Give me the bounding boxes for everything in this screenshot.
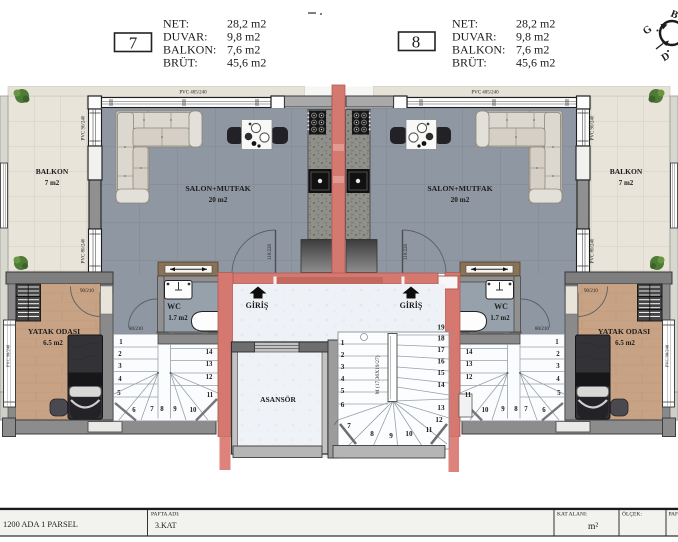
svg-text:1: 1 [341,339,345,347]
svg-text:BALKON:: BALKON: [163,43,216,57]
svg-text:ASANSÖR: ASANSÖR [260,395,296,404]
svg-text:BALKON:: BALKON: [452,43,505,57]
svg-text:19: 19 [437,324,445,332]
svg-text:8: 8 [370,430,374,438]
svg-text:9,8 m2: 9,8 m2 [516,30,549,44]
svg-text:6.5 m2: 6.5 m2 [615,339,635,347]
svg-text:2: 2 [556,351,560,358]
svg-text:12: 12 [435,416,443,424]
svg-text:7: 7 [524,406,528,413]
svg-text:5: 5 [117,390,121,397]
svg-text:PVC 80/240: PVC 80/240 [591,238,596,263]
svg-text:80/210: 80/210 [129,327,143,332]
svg-text:PVC 405/240: PVC 405/240 [471,91,499,96]
svg-text:110/220: 110/220 [268,243,273,260]
svg-text:PVC 80/240: PVC 80/240 [82,238,87,263]
svg-text:6: 6 [542,407,546,414]
svg-text:5: 5 [341,387,345,395]
svg-text:14: 14 [437,381,445,389]
svg-text:20 m2: 20 m2 [451,195,470,204]
svg-text:28,2 m2: 28,2 m2 [516,17,555,31]
svg-text:7: 7 [129,34,138,53]
svg-text:4: 4 [341,375,345,383]
svg-text:6: 6 [341,401,345,409]
svg-text:ÖLÇEK:: ÖLÇEK: [622,511,642,518]
svg-text:13: 13 [206,361,213,368]
svg-text:7,6 m2: 7,6 m2 [227,43,260,57]
svg-text:SALON+MUTFAK: SALON+MUTFAK [427,184,492,193]
svg-text:11: 11 [426,426,433,434]
svg-text:1200 ADA 1 PARSEL: 1200 ADA 1 PARSEL [3,520,78,529]
svg-text:WC: WC [167,302,181,311]
svg-text:GİRİŞ: GİRİŞ [246,300,269,310]
svg-text:SALON+MUTFAK: SALON+MUTFAK [185,184,250,193]
svg-text:BALKON: BALKON [36,167,69,176]
svg-text:90/210: 90/210 [80,289,94,294]
svg-text:110/220: 110/220 [404,243,409,260]
svg-text:KAT ALANI:: KAT ALANI: [557,512,588,518]
svg-text:3: 3 [118,363,122,370]
svg-text:20 m2: 20 m2 [209,195,228,204]
svg-text:8: 8 [412,33,421,52]
svg-text:NET:: NET: [163,17,189,31]
svg-text:PVC 90/240: PVC 90/240 [82,115,87,140]
svg-text:9: 9 [389,432,393,440]
svg-text:80/210: 80/210 [535,327,549,332]
svg-text:9: 9 [501,406,505,413]
svg-text:10: 10 [405,430,413,438]
svg-text:12: 12 [466,374,473,381]
svg-text:14: 14 [466,349,473,356]
svg-text:YATAK ODASI: YATAK ODASI [598,327,650,336]
svg-text:M (17,36X19/27): M (17,36X19/27) [374,355,381,394]
svg-text:12: 12 [206,374,213,381]
svg-text:5: 5 [557,390,561,397]
svg-text:11: 11 [207,392,214,399]
svg-text:3: 3 [341,363,345,371]
svg-text:PVC 405/240: PVC 405/240 [179,91,207,96]
svg-text:7,6 m2: 7,6 m2 [516,43,549,57]
svg-text:DUVAR:: DUVAR: [452,30,496,44]
svg-text:14: 14 [206,349,213,356]
svg-text:YATAK ODASI: YATAK ODASI [28,327,80,336]
svg-text:15: 15 [437,369,445,377]
svg-text:1.7 m2: 1.7 m2 [490,315,510,322]
svg-text:GİRİŞ: GİRİŞ [400,300,423,310]
svg-text:7 m2: 7 m2 [45,179,60,187]
svg-text:PVC 90/240: PVC 90/240 [6,344,11,367]
svg-text:3.KAT: 3.KAT [155,521,177,530]
svg-text:9: 9 [173,406,177,413]
svg-text:BALKON: BALKON [610,167,643,176]
svg-text:18: 18 [437,335,445,343]
svg-text:DUVAR:: DUVAR: [163,30,207,44]
svg-text:PVC 90/240: PVC 90/240 [591,115,596,140]
svg-text:13: 13 [437,404,445,412]
svg-text:17: 17 [437,346,445,354]
svg-text:BRÜT:: BRÜT: [163,56,198,70]
svg-text:1.7 m2: 1.7 m2 [168,315,188,322]
svg-text:PAF: PAF [669,512,678,518]
svg-text:11: 11 [465,392,472,399]
svg-text:16: 16 [437,358,445,366]
svg-text:6: 6 [132,407,136,414]
svg-text:NET:: NET: [452,17,478,31]
svg-text:7 m2: 7 m2 [619,179,634,187]
svg-text:9,8 m2: 9,8 m2 [227,30,260,44]
svg-text:10: 10 [190,407,197,414]
svg-text:1: 1 [119,339,123,346]
svg-text:45,6 m2: 45,6 m2 [516,56,555,70]
svg-text:8: 8 [160,406,164,413]
svg-text:4: 4 [118,376,122,383]
svg-text:90/210: 90/210 [584,289,598,294]
svg-text:6.5 m2: 6.5 m2 [43,339,63,347]
svg-text:BRÜT:: BRÜT: [452,56,487,70]
svg-text:4: 4 [556,376,560,383]
svg-text:1: 1 [555,339,559,346]
svg-text:2: 2 [341,351,345,359]
svg-text:m²: m² [588,522,598,532]
svg-text:8: 8 [514,406,518,413]
svg-text:7: 7 [150,406,154,413]
svg-text:2: 2 [118,351,122,358]
svg-text:45,6 m2: 45,6 m2 [227,56,266,70]
svg-text:7: 7 [347,422,351,430]
svg-text:WC: WC [494,302,508,311]
svg-text:3: 3 [556,363,560,370]
svg-text:13: 13 [466,361,473,368]
svg-text:PAFTA ADI:: PAFTA ADI: [151,512,180,518]
svg-text:28,2 m2: 28,2 m2 [227,17,266,31]
svg-text:10: 10 [482,407,489,414]
svg-text:PVC 90/240: PVC 90/240 [665,344,670,367]
